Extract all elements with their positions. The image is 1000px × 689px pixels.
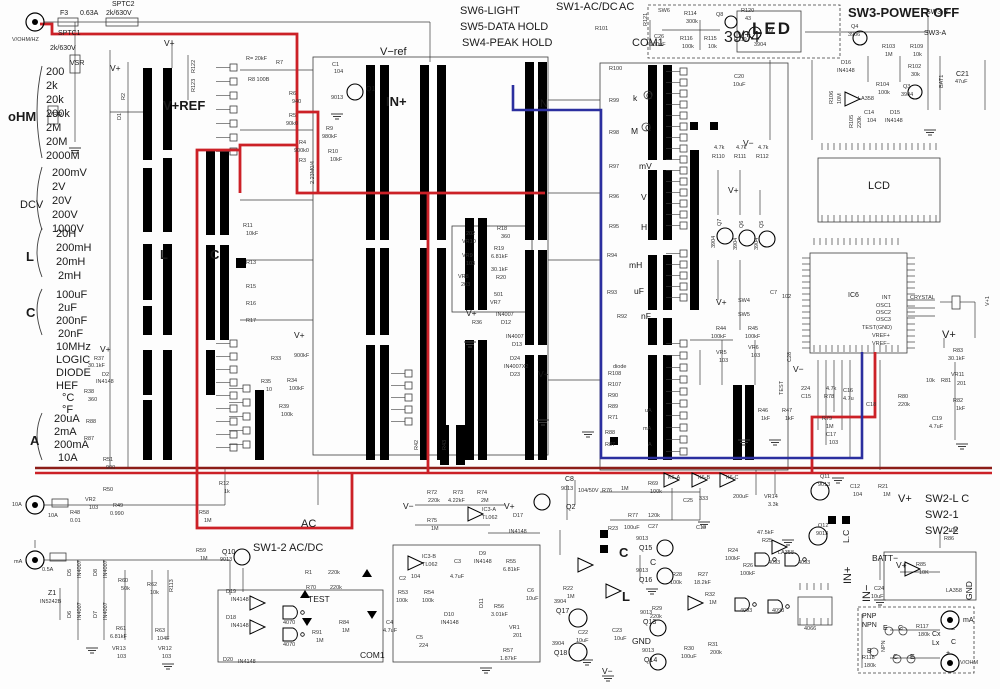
switch-deck-bar[interactable] — [143, 306, 152, 335]
box — [737, 11, 801, 52]
switch-contact[interactable] — [405, 406, 412, 413]
opamp-symbol — [688, 596, 703, 610]
switch-deck-bar[interactable] — [648, 355, 657, 460]
switch-deck-bar[interactable] — [538, 355, 547, 460]
transistor-symbol — [739, 230, 755, 246]
switch-contact[interactable] — [680, 68, 687, 75]
switch-deck-bar[interactable] — [380, 345, 389, 460]
gate-bubble — [786, 605, 790, 609]
switch-deck-bar[interactable] — [143, 244, 152, 300]
schematic-graphics — [0, 0, 1000, 689]
switch-contact[interactable] — [680, 123, 687, 130]
transistor-symbol — [650, 654, 666, 670]
range-bracket — [37, 413, 42, 460]
switch-contact[interactable] — [680, 200, 687, 207]
closed-contact — [610, 437, 618, 445]
switch-contact[interactable] — [405, 394, 412, 401]
triangle-down-marker — [367, 611, 377, 619]
switch-deck-bar[interactable] — [143, 68, 152, 160]
input-jack-center — [32, 557, 38, 563]
box — [52, 499, 68, 507]
switch-contact[interactable] — [680, 211, 687, 218]
box — [818, 158, 940, 222]
switch-contact[interactable] — [230, 392, 237, 399]
switch-deck-bar[interactable] — [220, 245, 229, 340]
closed-contact — [828, 516, 836, 524]
range-bracket — [37, 228, 42, 277]
switch-contact[interactable] — [680, 272, 687, 279]
opamp-symbol — [606, 584, 621, 598]
switch-contact[interactable] — [680, 364, 687, 371]
switch-deck-bar[interactable] — [143, 168, 152, 232]
switch-deck-bar[interactable] — [380, 248, 389, 335]
switch-deck-bar[interactable] — [648, 255, 657, 310]
logic-gate-symbol — [735, 598, 749, 611]
switch-contact[interactable] — [230, 366, 237, 373]
transistor-symbol — [759, 231, 775, 247]
switch-deck-bar[interactable] — [525, 355, 534, 460]
switch-contact[interactable] — [230, 353, 237, 360]
logic-gate-symbol — [768, 600, 782, 613]
switch-deck-bar[interactable] — [648, 170, 657, 240]
box — [452, 226, 532, 312]
range-bracket — [37, 66, 42, 158]
switch-contact[interactable] — [680, 283, 687, 290]
switch-contact[interactable] — [680, 101, 687, 108]
transistor-symbol — [908, 85, 922, 99]
socket-circle[interactable] — [870, 648, 878, 656]
gate-bubble — [773, 558, 777, 562]
switch-contact[interactable] — [230, 418, 237, 425]
switch-contact[interactable] — [680, 250, 687, 257]
switch-deck-bar[interactable] — [663, 318, 672, 345]
switch-contact[interactable] — [243, 427, 250, 434]
box — [648, 5, 840, 58]
switch-contact[interactable] — [680, 90, 687, 97]
switch-deck-bar[interactable] — [456, 425, 465, 465]
opamp-symbol — [664, 473, 679, 487]
switch-contact[interactable] — [230, 78, 237, 85]
switch-contact[interactable] — [680, 112, 687, 119]
switch-contact[interactable] — [230, 405, 237, 412]
transistor-symbol — [725, 16, 737, 28]
switch-contact[interactable] — [680, 448, 687, 455]
opamp-symbol — [250, 596, 265, 610]
switch-contact[interactable] — [230, 134, 237, 141]
socket-circle[interactable] — [893, 655, 901, 663]
closed-contact — [236, 258, 246, 268]
switch-deck-bar[interactable] — [380, 65, 389, 240]
opamp-symbol — [468, 507, 483, 521]
switch-deck-bar[interactable] — [648, 65, 657, 160]
switch-contact[interactable] — [680, 222, 687, 229]
closed-contact — [710, 122, 718, 130]
box — [798, 597, 832, 625]
red-highlight-wire — [297, 112, 318, 193]
opamp-symbol — [692, 473, 707, 487]
switch-contact[interactable] — [680, 79, 687, 86]
box — [393, 545, 540, 662]
switch-deck-bar[interactable] — [206, 350, 215, 395]
transistor-symbol — [569, 609, 587, 627]
opamp-symbol — [250, 620, 265, 634]
closed-contact — [842, 516, 850, 524]
switch-deck-bar[interactable] — [663, 170, 672, 240]
gate-bubble — [803, 558, 807, 562]
switch-deck-bar[interactable] — [366, 248, 375, 335]
box — [858, 607, 974, 673]
transistor-symbol — [234, 549, 250, 565]
logic-gate-symbol — [755, 553, 769, 566]
logic-gate-symbol — [283, 606, 297, 619]
switch-contact[interactable] — [243, 385, 250, 392]
box — [952, 296, 960, 309]
opamp-symbol — [845, 92, 860, 106]
triangle-up-marker — [300, 590, 310, 598]
red-highlight-wire — [812, 352, 875, 473]
transistor-symbol — [534, 494, 550, 510]
switch-deck-bar[interactable] — [255, 390, 264, 460]
switch-contact[interactable] — [230, 340, 237, 347]
switch-contact[interactable] — [230, 92, 237, 99]
switch-contact[interactable] — [230, 444, 237, 451]
transistor-symbol — [809, 527, 827, 545]
transistor-symbol — [650, 620, 666, 636]
switch-deck-bar[interactable] — [648, 318, 657, 345]
logic-gate-symbol — [785, 553, 799, 566]
switch-deck-bar[interactable] — [220, 150, 229, 235]
red-highlight-wire — [240, 145, 297, 193]
switch-deck-bar[interactable] — [143, 350, 152, 395]
switch-contact[interactable] — [243, 413, 250, 420]
transistor-symbol — [717, 228, 733, 244]
switch-contact[interactable] — [680, 412, 687, 419]
opamp-symbol — [720, 473, 735, 487]
gate-bubble — [753, 603, 757, 607]
switch-contact[interactable] — [680, 436, 687, 443]
switch-deck-bar[interactable] — [538, 62, 547, 240]
range-bracket — [37, 289, 42, 335]
input-jack-center — [32, 502, 38, 508]
switch-deck-bar[interactable] — [690, 150, 699, 310]
red-highlight-wire — [40, 24, 545, 193]
closed-contact — [690, 122, 698, 130]
socket-circle[interactable] — [907, 655, 915, 663]
switch-contact[interactable] — [680, 178, 687, 185]
switch-deck-bar[interactable] — [206, 150, 215, 235]
box — [884, 552, 976, 600]
switch-deck-bar[interactable] — [745, 385, 754, 460]
input-jack-center — [947, 617, 953, 623]
switch-contact[interactable] — [680, 376, 687, 383]
range-bracket — [37, 167, 42, 230]
switch-contact[interactable] — [680, 400, 687, 407]
switch-contact[interactable] — [680, 388, 687, 395]
switch-contact[interactable] — [230, 106, 237, 113]
switch-deck-bar[interactable] — [366, 345, 375, 460]
switch-contact[interactable] — [680, 424, 687, 431]
triangle-down-marker — [302, 618, 312, 626]
transistor-symbol — [347, 84, 363, 100]
switch-contact[interactable] — [680, 167, 687, 174]
transistor-symbol — [853, 31, 867, 45]
switch-contact[interactable] — [680, 340, 687, 347]
switch-deck-bar[interactable] — [437, 65, 446, 240]
switch-contact[interactable] — [680, 294, 687, 301]
transistor-symbol — [657, 568, 673, 584]
switch-deck-bar[interactable] — [465, 218, 474, 310]
switch-deck-bar[interactable] — [440, 425, 449, 465]
box — [218, 590, 383, 662]
switch-contact[interactable] — [243, 399, 250, 406]
switch-deck-bar[interactable] — [538, 250, 547, 345]
transistor-symbol — [749, 27, 761, 39]
opamp-symbol — [408, 556, 423, 570]
switch-deck-bar[interactable] — [143, 400, 152, 460]
transistor-symbol — [569, 643, 587, 661]
transistor-symbol — [657, 540, 673, 556]
switch-contact[interactable] — [680, 189, 687, 196]
input-jack-center — [947, 660, 953, 666]
gate-bubble — [301, 633, 305, 637]
box — [48, 106, 58, 124]
switch-contact[interactable] — [405, 418, 412, 425]
gate-bubble — [301, 611, 305, 615]
closed-contact — [600, 545, 608, 553]
switch-contact[interactable] — [405, 382, 412, 389]
switch-contact[interactable] — [243, 441, 250, 448]
switch-contact[interactable] — [230, 379, 237, 386]
switch-contact[interactable] — [405, 370, 412, 377]
switch-deck-bar[interactable] — [663, 355, 672, 460]
switch-deck-bar[interactable] — [206, 245, 215, 340]
box — [313, 57, 548, 455]
closed-contact — [648, 424, 656, 432]
box — [810, 253, 907, 353]
switch-deck-bar[interactable] — [733, 385, 742, 460]
input-jack-center — [32, 19, 38, 25]
switch-contact[interactable] — [680, 352, 687, 359]
switch-deck-bar[interactable] — [478, 340, 487, 460]
switch-deck-bar[interactable] — [465, 340, 474, 460]
switch-contact[interactable] — [230, 64, 237, 71]
schematic-page: V/OHM/HZF30.63ASPTC22k/630VSPTC12k/630VV… — [0, 0, 1000, 689]
switch-contact[interactable] — [680, 261, 687, 268]
switch-deck-bar[interactable] — [525, 250, 534, 345]
closed-contact — [600, 530, 608, 538]
socket-circle[interactable] — [899, 627, 907, 635]
switch-deck-bar[interactable] — [163, 350, 172, 460]
switch-contact[interactable] — [680, 156, 687, 163]
switch-deck-bar[interactable] — [163, 68, 172, 150]
switch-deck-bar[interactable] — [525, 62, 534, 240]
opamp-symbol — [905, 562, 920, 576]
switch-contact[interactable] — [680, 134, 687, 141]
switch-deck-bar[interactable] — [663, 65, 672, 160]
switch-deck-bar[interactable] — [163, 158, 172, 232]
triangle-up-marker — [362, 569, 372, 577]
opamp-symbol — [578, 558, 593, 572]
transistor-symbol — [811, 482, 829, 500]
logic-gate-symbol — [283, 628, 297, 641]
switch-contact[interactable] — [230, 120, 237, 127]
switch-deck-bar[interactable] — [663, 255, 672, 310]
switch-deck-bar[interactable] — [478, 218, 487, 310]
switch-contact[interactable] — [230, 431, 237, 438]
switch-contact[interactable] — [680, 145, 687, 152]
socket-circle[interactable] — [885, 627, 893, 635]
switch-deck-bar[interactable] — [163, 244, 172, 335]
switch-deck-bar[interactable] — [366, 65, 375, 240]
